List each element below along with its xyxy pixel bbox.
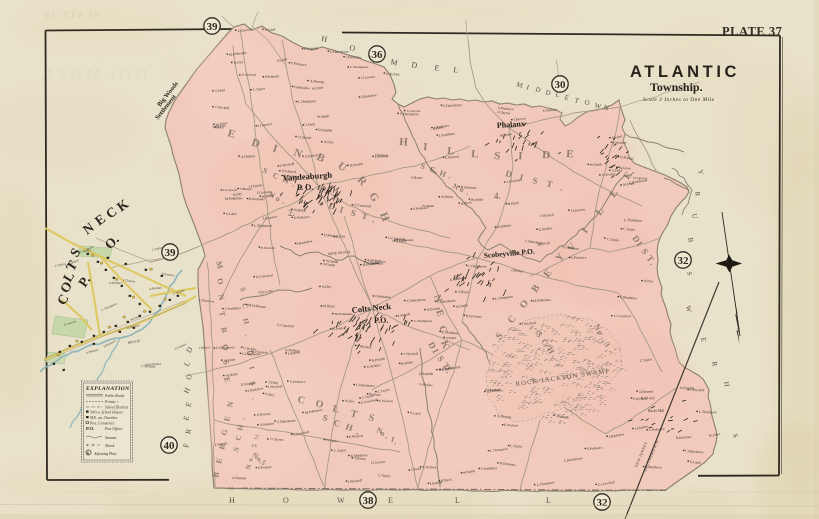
svg-text:R.Emmons: R.Emmons [466,314,482,319]
svg-text:Post Offices: Post Offices [104,427,123,431]
svg-text:HOLMDEL: HOLMDEL [38,65,148,84]
svg-text:C.Taylor: C.Taylor [510,444,523,449]
svg-text:D.Sutphin: D.Sutphin [318,128,333,133]
svg-text:L.Thompson: L.Thompson [699,410,717,414]
svg-text:M.E. aw. Churches: M.E. aw. Churches [89,416,118,420]
svg-text:300 vo. School Houses: 300 vo. School Houses [90,411,123,415]
svg-text:D.Perrine: D.Perrine [613,141,627,145]
svg-text:W.Jones: W.Jones [332,326,345,331]
svg-text:R.Emmons: R.Emmons [249,197,265,201]
svg-text:S.Laird: S.Laird [265,27,276,32]
svg-text:W.Hulse: W.Hulse [294,208,307,213]
svg-text:W.Hulse: W.Hulse [323,304,336,308]
svg-text:N.Dey: N.Dey [644,279,654,283]
svg-text:J.Brown: J.Brown [199,345,210,350]
svg-text:S.Laird: S.Laird [644,396,655,400]
svg-text:E.Wolcott: E.Wolcott [504,423,518,428]
svg-text:D.Sutphin: D.Sutphin [680,386,695,390]
svg-text:P.O.: P.O. [374,316,388,325]
svg-text:Scale 3 Inches to One Mile: Scale 3 Inches to One Mile [643,97,715,103]
svg-text:I: I [423,141,428,153]
svg-text:E: E [388,496,393,505]
svg-text:L: L [455,496,460,505]
svg-text:40: 40 [164,440,176,452]
svg-text:W.Hulse: W.Hulse [441,195,454,199]
svg-text:G.Sickles: G.Sickles [386,72,400,76]
svg-text:P.Schenck: P.Schenck [304,46,319,51]
svg-text:T.Hance: T.Hance [411,176,423,180]
svg-text:J.Conover: J.Conover [633,176,648,181]
svg-text:E.Matthews: E.Matthews [645,465,663,470]
svg-text:J.Wyckoff: J.Wyckoff [268,384,283,389]
svg-text:Public Roads: Public Roads [104,394,125,398]
svg-text:6: 6 [87,450,89,455]
svg-text:V: V [8,352,15,362]
svg-text:Streams: Streams [105,436,117,440]
svg-text:C.Hartshorne: C.Hartshorne [468,264,487,269]
svg-text:ATLANTIC: ATLANTIC [630,63,740,81]
svg-text:A.Holmes: A.Holmes [422,465,437,470]
svg-text:4.: 4. [494,191,501,201]
svg-text:C.Hartshorne: C.Hartshorne [216,345,235,350]
svg-text:J.Conover: J.Conover [223,188,238,192]
svg-text:A.Bennett: A.Bennett [232,476,246,480]
svg-text:S.Laird: S.Laird [396,239,407,243]
svg-text:J.Clayton: J.Clayton [407,109,421,113]
svg-text:C.Taylor: C.Taylor [334,448,347,453]
svg-text:L: L [471,148,479,160]
svg-text:N.Dey: N.Dey [345,399,355,403]
svg-text:39: 39 [165,247,177,259]
svg-text:H: H [399,136,409,149]
svg-text:Adjoining Plate: Adjoining Plate [93,452,117,456]
svg-text:J.Statesir: J.Statesir [375,153,389,157]
svg-text:E.Wolcott: E.Wolcott [379,399,393,403]
svg-text:S.Laird: S.Laird [410,411,421,416]
svg-text:P. O.: P. O. [297,183,313,192]
svg-text:W.Smith: W.Smith [471,198,484,202]
svg-text:N.Dey: N.Dey [322,285,332,289]
svg-text:S.Probasco: S.Probasco [571,255,587,260]
svg-text:T.Field: T.Field [305,122,315,127]
svg-text:J.Statesir: J.Statesir [255,350,269,355]
svg-text:L.Thompson: L.Thompson [350,65,368,69]
svg-text:T.Field: T.Field [446,336,456,340]
svg-text:K: K [10,222,17,232]
svg-text:N.Dey: N.Dey [336,234,346,239]
svg-text:A.Holmes: A.Holmes [109,281,123,285]
svg-text:W.Smith: W.Smith [422,204,434,208]
svg-text:D.Sutphin: D.Sutphin [284,174,299,179]
svg-text:G.Crawford: G.Crawford [614,314,631,318]
svg-text:L.Thompson: L.Thompson [414,319,432,323]
svg-text:Pres. Cemeteries: Pres. Cemeteries [89,422,115,426]
svg-text:32: 32 [678,255,690,267]
svg-text:W.Smith: W.Smith [590,162,603,167]
svg-text:A.Holmes: A.Holmes [285,348,300,353]
svg-text:H: H [229,496,235,505]
svg-text:T.Field: T.Field [215,88,225,93]
svg-text:PLATE 36: PLATE 36 [43,10,100,21]
svg-text:S.Laird: S.Laird [226,212,237,216]
svg-text:EXPLANATION: EXPLANATION [85,386,130,392]
svg-text:L.Thompson: L.Thompson [254,224,272,228]
svg-text:PLATE 37: PLATE 37 [722,25,782,39]
svg-text:L.Thompson: L.Thompson [624,218,642,223]
svg-text:P.Schenck: P.Schenck [265,74,280,79]
svg-text:J.Barkalow: J.Barkalow [346,55,362,60]
svg-text:A.Bennett: A.Bennett [639,390,653,394]
svg-text:39: 39 [207,21,219,33]
svg-text:Private +: Private + [104,400,119,404]
svg-text:W: W [337,496,345,505]
svg-text:30: 30 [555,79,567,91]
svg-text:D: D [542,149,551,162]
svg-text:Marsh: Marsh [104,444,115,448]
svg-text:M.Polhemus: M.Polhemus [335,312,353,316]
svg-text:E.Wolcott: E.Wolcott [242,73,256,77]
svg-text:T.Hance: T.Hance [458,290,470,294]
svg-text:School Districts: School Districts [105,406,129,410]
svg-text:32: 32 [597,497,609,509]
svg-text:E: E [566,148,574,160]
svg-text:N.Dey: N.Dey [324,140,334,144]
svg-text:D.Sutphin: D.Sutphin [419,372,434,376]
svg-text:E.Wolcott: E.Wolcott [261,246,275,250]
svg-text:J.VanMater: J.VanMater [141,364,157,369]
svg-text:L: L [546,496,551,505]
svg-text:J.Wyckoff: J.Wyckoff [404,352,419,356]
svg-text:O: O [283,496,289,505]
svg-text:P.O.: P.O. [86,426,94,431]
svg-text:S: S [494,150,501,162]
svg-text:C.Hartshorne: C.Hartshorne [330,50,349,54]
svg-text:I: I [518,150,523,162]
svg-text:Bucks Mill: Bucks Mill [648,409,664,413]
svg-text:O: O [10,142,17,152]
svg-text:Township.: Township. [650,80,703,94]
svg-text:S.Probasco: S.Probasco [290,380,306,384]
